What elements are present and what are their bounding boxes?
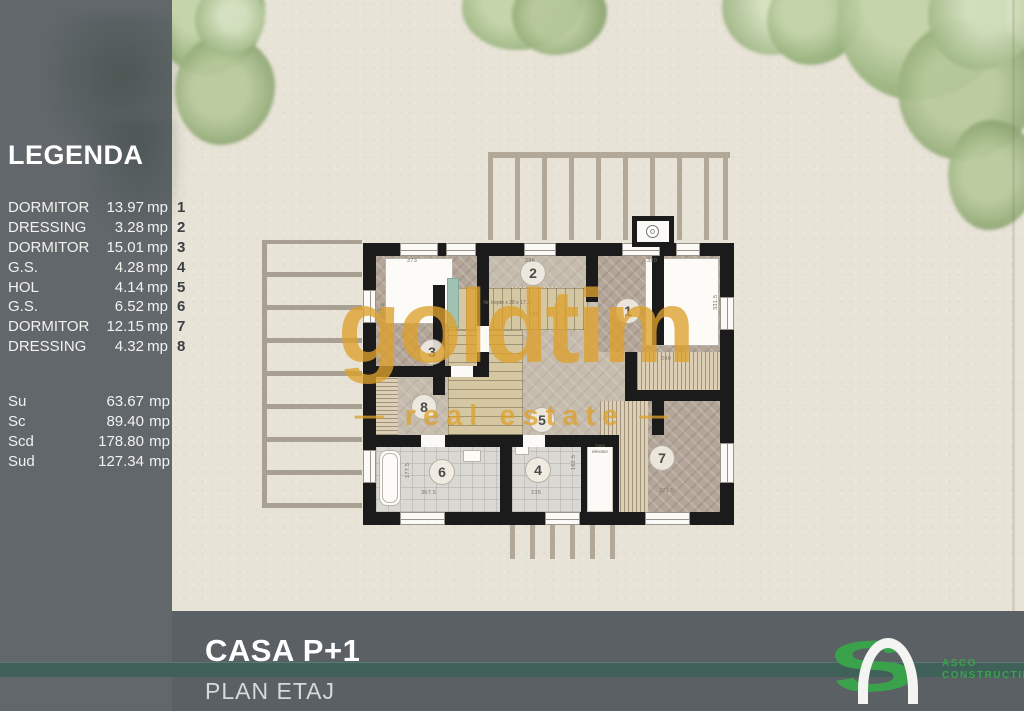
flyer-canvas: 1 2 3 4 5 6 7 8 373 296 380 367.5 235 37… [0, 0, 1024, 711]
legend-totals: Su63.67mp Sc89.40mp Scd178.80mp Sud127.3… [8, 392, 170, 472]
room-area: 4.28 [94, 258, 144, 278]
logo-line-1: ASCO [942, 658, 1024, 670]
room-label: G.S. [8, 297, 94, 317]
room-label: DRESSING [8, 337, 94, 357]
legend-rows: DORMITOR13.97mp DRESSING3.28mp DORMITOR1… [8, 198, 168, 357]
dimension-label: 373 [407, 258, 417, 264]
dimension-label: 235 [531, 490, 541, 496]
legend-row: G.S.6.52mp [8, 297, 168, 317]
legend-row: DORMITOR12.15mp [8, 317, 168, 337]
total-row: Su63.67mp [8, 392, 170, 412]
window [645, 512, 690, 525]
total-label: Su [8, 392, 48, 412]
room-area: 15.01 [94, 238, 144, 258]
tree-canopy [838, 0, 1024, 230]
room-label: DORMITOR [8, 198, 94, 218]
room-number-4: 4 [525, 457, 551, 483]
legend-title: LEGENDA [8, 140, 144, 171]
legend-index: 1 [177, 198, 193, 218]
legend-index: 6 [177, 297, 193, 317]
total-value: 127.34 [48, 452, 144, 472]
total-row: Scd178.80mp [8, 432, 170, 452]
watermark-tagline: —real estate— [300, 400, 730, 433]
total-unit: mp [144, 452, 170, 472]
legend-index: 2 [177, 218, 193, 238]
window [400, 512, 445, 525]
window [524, 243, 556, 256]
door-opening [523, 435, 545, 447]
dimension-label: 296 [525, 258, 535, 264]
room-area: 3.28 [94, 218, 144, 238]
room-label: DORMITOR [8, 238, 94, 258]
room-number-7: 7 [649, 445, 675, 471]
watermark-brand: goldtim [295, 268, 735, 387]
door-opening [421, 435, 445, 447]
room-label: G.S. [8, 258, 94, 278]
window [446, 243, 476, 256]
total-value: 63.67 [48, 392, 144, 412]
window [545, 512, 580, 525]
legend-row: HOL4.14mp [8, 278, 168, 298]
pergola-slats [488, 158, 730, 240]
window [400, 243, 438, 256]
dimension-label: 380 [647, 258, 657, 264]
legend-panel: LEGENDA DORMITOR13.97mp DRESSING3.28mp D… [0, 0, 172, 711]
legend-index: 8 [177, 337, 193, 357]
room-area: 12.15 [94, 317, 144, 337]
vent-fan-icon [646, 225, 659, 238]
room-label: DRESSING [8, 218, 94, 238]
tree-canopy [462, 0, 612, 65]
total-label: Sc [8, 412, 48, 432]
builder-logo: S ASCO CONSTRUCTII [830, 630, 1020, 710]
legend-row: DORMITOR13.97mp [8, 198, 168, 218]
legend-index: 3 [177, 238, 193, 258]
area-unit: mp [144, 238, 168, 258]
total-label: Sud [8, 452, 48, 472]
total-value: 89.40 [48, 412, 144, 432]
area-unit: mp [144, 258, 168, 278]
logo-company-name: ASCO CONSTRUCTII [942, 658, 1024, 682]
legend-row: DRESSING4.32mp [8, 337, 168, 357]
legend-row: DRESSING3.28mp [8, 218, 168, 238]
room-label: DORMITOR [8, 317, 94, 337]
watermark-dash: — [355, 400, 391, 432]
dimension-label: 162.5 [571, 455, 577, 470]
project-title: CASA P+1 [205, 633, 360, 669]
area-unit: mp [144, 198, 168, 218]
window [363, 450, 376, 483]
pergola-deck [488, 152, 730, 240]
watermark-dash: — [639, 400, 675, 432]
area-unit: mp [144, 297, 168, 317]
sink-icon [463, 450, 481, 462]
area-unit: mp [144, 317, 168, 337]
legend-index: 5 [177, 278, 193, 298]
room-area: 4.14 [94, 278, 144, 298]
window [720, 443, 734, 483]
total-row: Sc89.40mp [8, 412, 170, 432]
dimension-label: 177.5 [405, 463, 411, 478]
window [676, 243, 700, 256]
room-area: 13.97 [94, 198, 144, 218]
legend-row: DORMITOR15.01mp [8, 238, 168, 258]
legend-row: G.S.4.28mp [8, 258, 168, 278]
legend-index: 7 [177, 317, 193, 337]
total-row: Sud127.34mp [8, 452, 170, 472]
room-label: HOL [8, 278, 94, 298]
site-path-line [1012, 0, 1015, 611]
area-unit: mp [144, 278, 168, 298]
watermark-tagline-text: real estate [405, 400, 626, 432]
logo-line-2: CONSTRUCTII [942, 670, 1024, 682]
chimney-shaft [632, 216, 674, 247]
area-unit: mp [144, 218, 168, 238]
area-unit: mp [144, 337, 168, 357]
room-number-6: 6 [429, 459, 455, 485]
wall-closet [613, 440, 619, 512]
total-unit: mp [144, 392, 170, 412]
lower-deck-slats [510, 525, 622, 559]
total-label: Scd [8, 432, 48, 452]
room-area: 6.52 [94, 297, 144, 317]
bathtub-icon [379, 450, 401, 506]
elevator-note: mast elevator [587, 443, 613, 454]
plan-subtitle: PLAN ETAJ [205, 678, 335, 705]
total-unit: mp [144, 432, 170, 452]
total-value: 178.80 [48, 432, 144, 452]
total-unit: mp [144, 412, 170, 432]
dimension-label: 367.5 [421, 490, 436, 496]
pergola-beam [723, 152, 728, 240]
wall-interior [500, 447, 512, 512]
dimension-label: 371.5 [659, 488, 674, 494]
room-area: 4.32 [94, 337, 144, 357]
legend-index: 4 [177, 258, 193, 278]
legend-index-numbers: 1 2 3 4 5 6 7 8 [177, 198, 193, 357]
